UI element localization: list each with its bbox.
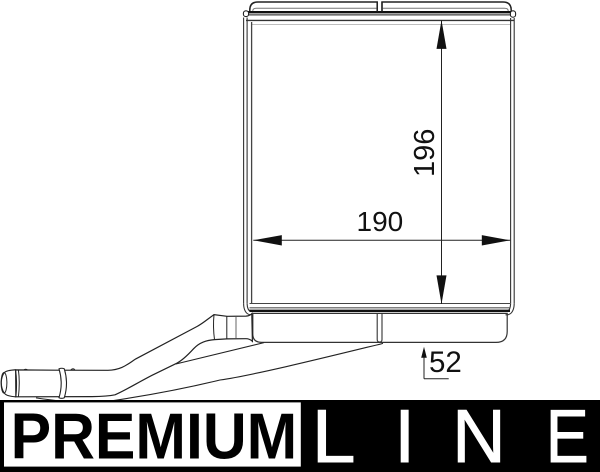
- svg-text:L: L: [312, 395, 356, 472]
- svg-text:190: 190: [357, 206, 404, 237]
- svg-text:52: 52: [429, 346, 462, 379]
- svg-text:PREMIUM: PREMIUM: [11, 401, 298, 472]
- svg-text:E: E: [546, 394, 589, 472]
- svg-text:N: N: [452, 394, 506, 472]
- svg-text:196: 196: [409, 129, 441, 177]
- svg-text:I: I: [394, 394, 415, 472]
